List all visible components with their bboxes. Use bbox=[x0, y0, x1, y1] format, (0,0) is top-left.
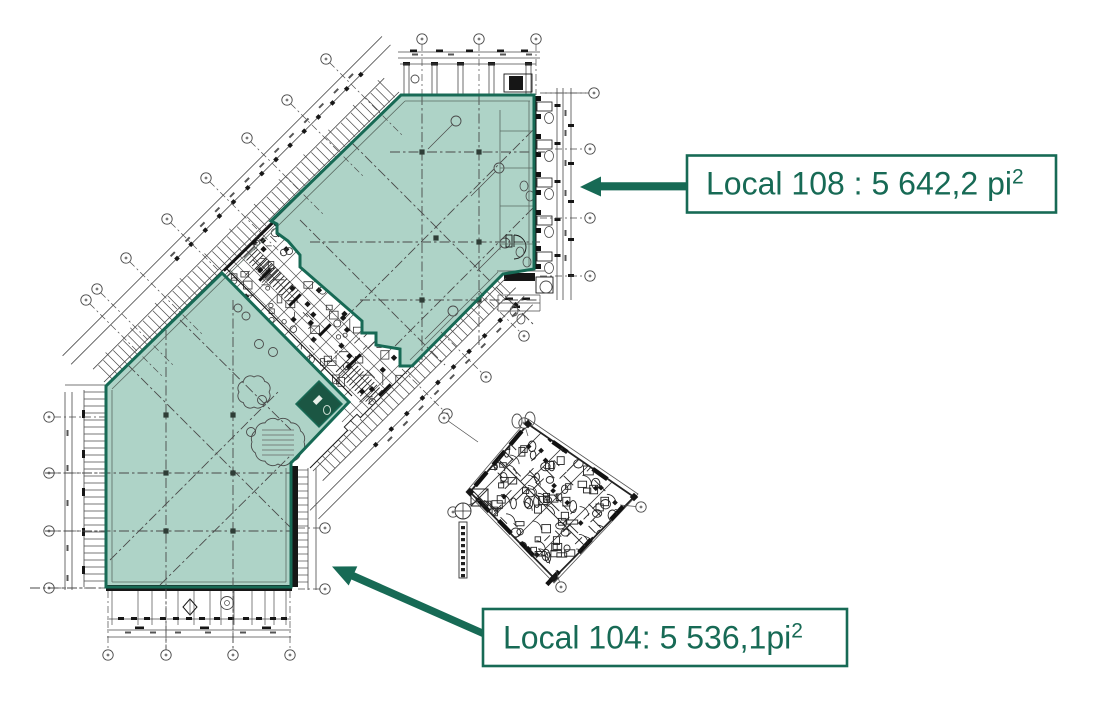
svg-text:Local 104: 5 536,1pi2: Local 104: 5 536,1pi2 bbox=[503, 620, 803, 656]
svg-text:Local 108 : 5 642,2 pi2: Local 108 : 5 642,2 pi2 bbox=[706, 166, 1024, 202]
